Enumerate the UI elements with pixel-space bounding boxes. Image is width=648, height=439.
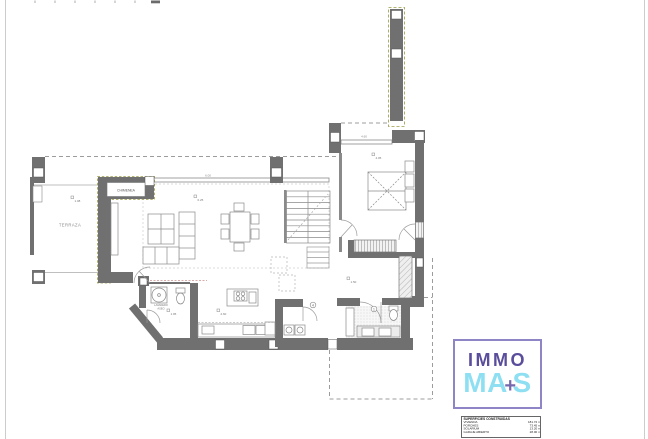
laundry-note-1: LAVADERO bbox=[154, 303, 168, 307]
logo-plus-icon: + bbox=[504, 377, 516, 396]
drawing-sheet: CHIMENEA TERRAZA LAVADERO ASEO 6.00 4.60… bbox=[0, 0, 648, 439]
svg-text:1.50: 1.50 bbox=[351, 280, 357, 284]
area-value: 28.00 m² bbox=[530, 431, 541, 434]
dim-living-window: 6.00 bbox=[205, 174, 211, 178]
chimney-wall bbox=[389, 8, 405, 127]
laundry-note-2: ASEO bbox=[157, 307, 164, 311]
key-note: 1 bbox=[371, 306, 377, 312]
svg-text:1.08: 1.08 bbox=[75, 199, 81, 203]
scale-ruler bbox=[35, 1, 160, 4]
utility-appliances bbox=[284, 325, 305, 335]
area-name: GARAJE ABIERTO bbox=[464, 431, 490, 434]
terrace-label: TERRAZA bbox=[59, 223, 81, 228]
key-note: 4 bbox=[310, 302, 316, 308]
level-marker: 2.60 bbox=[217, 309, 227, 316]
floor-plan-drawing: CHIMENEA TERRAZA LAVADERO ASEO 6.00 4.60… bbox=[0, 0, 648, 439]
laundry-room bbox=[151, 287, 185, 304]
logo-mas-ma: MA bbox=[463, 370, 508, 397]
fireplace-label: CHIMENEA bbox=[117, 189, 136, 193]
svg-text:4: 4 bbox=[312, 303, 314, 307]
bedroom-furniture bbox=[354, 161, 414, 252]
svg-text:1.95: 1.95 bbox=[171, 312, 177, 316]
living-room-furniture bbox=[111, 203, 259, 264]
window-bands bbox=[34, 140, 392, 273]
level-marker: 0.25 bbox=[194, 195, 204, 202]
svg-text:2.60: 2.60 bbox=[221, 312, 227, 316]
svg-text:0.25: 0.25 bbox=[198, 198, 204, 202]
svg-text:1: 1 bbox=[373, 307, 375, 311]
staircase bbox=[271, 191, 330, 291]
level-marker: 1.50 bbox=[347, 277, 357, 284]
level-marker: 1.08 bbox=[71, 196, 81, 203]
immomas-logo: IMMO MA + S bbox=[453, 339, 542, 409]
level-marker: 4.05 bbox=[372, 153, 382, 160]
logo-word-mas: MA + S bbox=[463, 370, 531, 397]
svg-text:4.05: 4.05 bbox=[376, 156, 382, 160]
dim-bedroom-window: 4.60 bbox=[361, 135, 367, 139]
table-row: GARAJE ABIERTO 28.00 m² bbox=[464, 431, 542, 434]
surface-areas-table: SUPERFICIES CONSTRUIDAS VIVIENDA 181.72 … bbox=[461, 416, 541, 438]
level-marker: 1.95 bbox=[167, 309, 177, 316]
